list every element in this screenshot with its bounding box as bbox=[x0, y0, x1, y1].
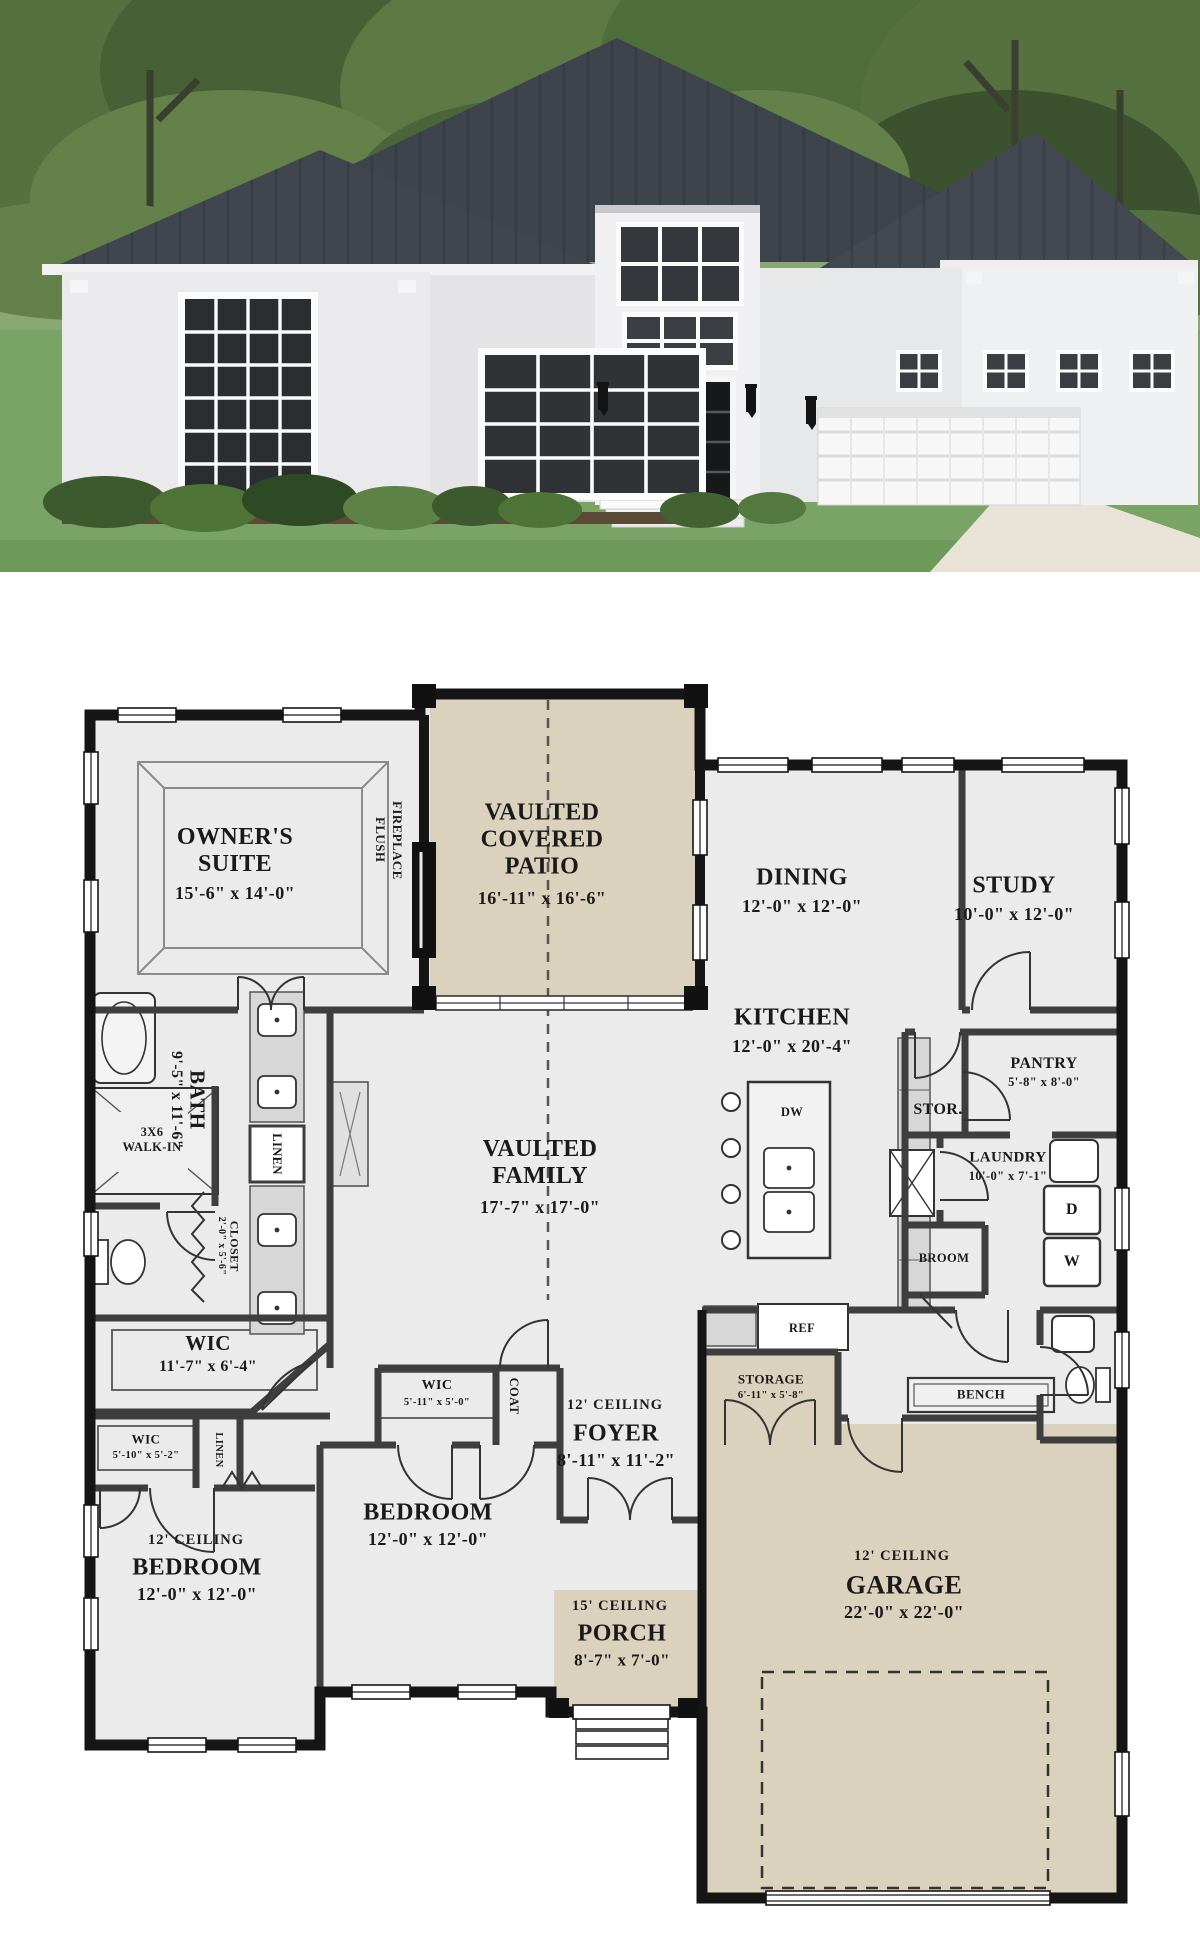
label-linen-hall: LINEN bbox=[212, 1432, 224, 1467]
room-dims-kitchen: 12'-0" x 20'-4" bbox=[732, 1036, 852, 1056]
room-label-bedroom-center: BEDROOM bbox=[363, 1500, 492, 1527]
room-label-laundry: LAUNDRY bbox=[969, 1150, 1046, 1167]
room-label-owners-suite: OWNER'S SUITE bbox=[150, 824, 320, 878]
room-label-garage: GARAGE bbox=[846, 1570, 963, 1599]
label-walk-in-shower: 3X6 WALK-IN bbox=[121, 1125, 183, 1155]
room-dims-laundry: 10'-0" x 7'-1" bbox=[969, 1169, 1048, 1183]
room-label-wic-center: WIC bbox=[422, 1378, 453, 1394]
room-dims-family: 17'-7" x 17'-0" bbox=[480, 1197, 600, 1217]
room-label-storage: STORAGE bbox=[738, 1373, 804, 1388]
room-label-wic-left: WIC bbox=[132, 1433, 161, 1448]
room-label-foyer: FOYER bbox=[573, 1421, 659, 1448]
label-refrigerator: REF bbox=[789, 1321, 815, 1335]
room-label-study: STUDY bbox=[972, 873, 1055, 900]
room-label-pantry: PANTRY bbox=[1010, 1055, 1077, 1073]
label-dryer: D bbox=[1066, 1201, 1078, 1219]
pin-image: OWNER'S SUITE 15'-6" x 14'-0" FLUSH FIRE… bbox=[0, 0, 1200, 1935]
room-dims-pantry: 5'-8" x 8'-0" bbox=[1008, 1075, 1080, 1089]
room-label-kitchen: KITCHEN bbox=[734, 1005, 850, 1032]
room-dims-bedroom-center: 12'-0" x 12'-0" bbox=[368, 1529, 488, 1549]
room-dims-porch: 8'-7" x 7'-0" bbox=[574, 1650, 670, 1669]
label-broom: BROOM bbox=[919, 1251, 970, 1265]
ceiling-note-bedroom-left: 12' CEILING bbox=[148, 1532, 244, 1548]
room-dims-wic-left: 5'-10" x 5'-2" bbox=[113, 1450, 180, 1462]
room-dims-study: 10'-0" x 12'-0" bbox=[954, 904, 1074, 924]
room-label-stor: STOR. bbox=[913, 1101, 962, 1119]
room-dims-wic-owner: 11'-7" x 6'-4" bbox=[159, 1358, 257, 1376]
ceiling-note-porch: 15' CEILING bbox=[572, 1598, 668, 1614]
room-dims-wic-center: 5'-11" x 5'-0" bbox=[404, 1397, 470, 1409]
label-closet-bath: CLOSET 2'-0" x 5'-6" bbox=[216, 1217, 241, 1276]
label-washer: W bbox=[1064, 1253, 1080, 1271]
label-flush-fireplace: FLUSH FIREPLACE bbox=[371, 781, 405, 931]
garage-floor bbox=[705, 1424, 1118, 1895]
room-dims-patio: 16'-11" x 16'-6" bbox=[478, 888, 606, 908]
room-label-wic-owner: WIC bbox=[185, 1332, 231, 1356]
label-dishwasher: DW bbox=[781, 1105, 803, 1119]
ceiling-note-garage: 12' CEILING bbox=[854, 1548, 950, 1564]
room-dims-foyer: 8'-11" x 11'-2" bbox=[557, 1450, 675, 1470]
room-dims-owners-suite: 15'-6" x 14'-0" bbox=[175, 883, 295, 903]
label-bench: BENCH bbox=[957, 1388, 1005, 1403]
label-coat: COAT bbox=[507, 1378, 521, 1415]
room-label-family: VAULTED FAMILY bbox=[470, 1136, 610, 1190]
room-dims-storage: 6'-11" x 5'-8" bbox=[738, 1390, 804, 1402]
room-dims-garage: 22'-0" x 22'-0" bbox=[844, 1602, 964, 1622]
room-label-bedroom-left: BEDROOM bbox=[132, 1555, 261, 1582]
room-label-dining: DINING bbox=[756, 865, 848, 892]
room-dims-bedroom-left: 12'-0" x 12'-0" bbox=[137, 1584, 257, 1604]
room-dims-dining: 12'-0" x 12'-0" bbox=[742, 896, 862, 916]
room-label-porch: PORCH bbox=[578, 1621, 667, 1648]
room-label-patio: VAULTED COVERED PATIO bbox=[457, 800, 627, 881]
ceiling-note-foyer: 12' CEILING bbox=[567, 1397, 663, 1413]
label-linen-bath: LINEN bbox=[270, 1133, 284, 1175]
